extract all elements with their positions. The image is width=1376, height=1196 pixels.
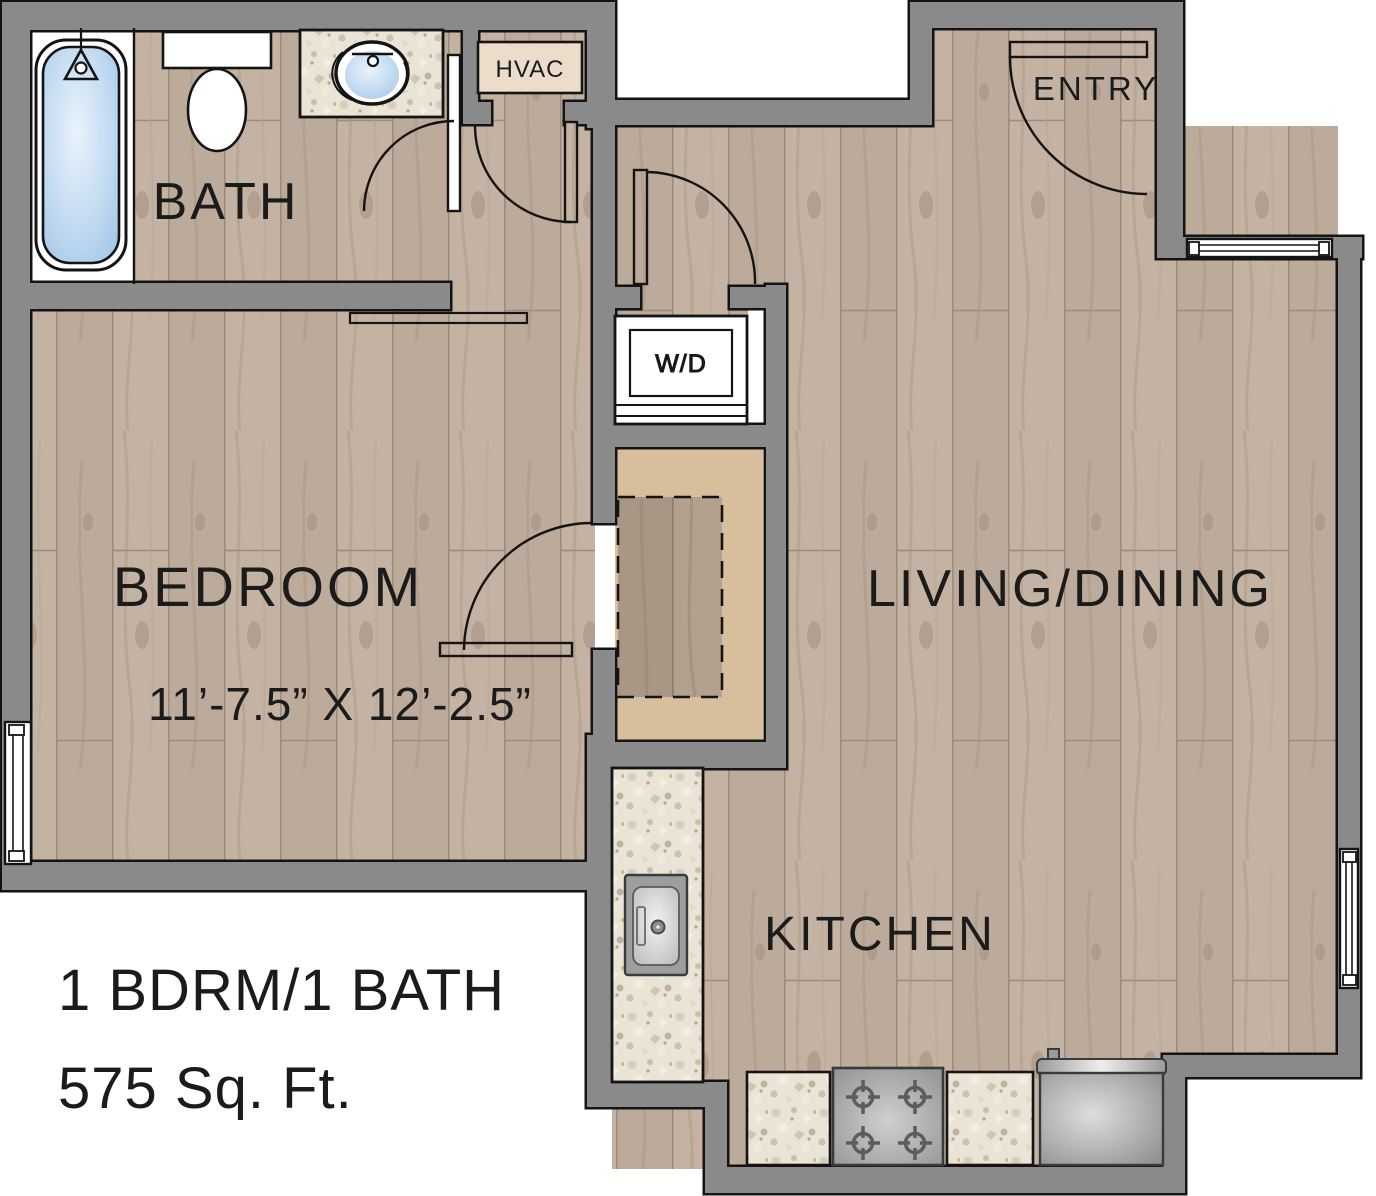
kitchen-sink (625, 875, 687, 975)
plan-summary: 1 BDRM/1 BATH 575 Sq. Ft. (58, 958, 505, 1121)
closet-shelf-line (350, 313, 527, 323)
entry-label: ENTRY (1033, 70, 1159, 107)
hvac-closet: HVAC (478, 42, 582, 93)
fridge-body (1040, 1073, 1163, 1165)
kitchen-counter-south-left (747, 1072, 830, 1165)
closet (618, 497, 722, 697)
floor-plan-page: HVAC W/D (0, 0, 1376, 1196)
living-window-east (1340, 849, 1358, 988)
floor-plan-drawing: HVAC W/D (0, 0, 1376, 1196)
refrigerator (1037, 1049, 1166, 1165)
washer-dryer: W/D (615, 316, 747, 424)
bath-label: BATH (153, 173, 300, 231)
bedroom-window-west (5, 722, 31, 864)
stove (833, 1068, 943, 1165)
kitchen-counter-south-right (947, 1072, 1033, 1165)
wd-label: W/D (655, 350, 707, 378)
living-window-north (1187, 239, 1332, 257)
bedroom-label: BEDROOM (113, 555, 423, 618)
plan-summary-line2: 575 Sq. Ft. (58, 1056, 353, 1121)
hallway-opening (450, 283, 595, 311)
vanity (300, 30, 443, 117)
kitchen-label: KITCHEN (764, 908, 996, 961)
closet-rod-dashed-outline (618, 497, 722, 697)
living-dining-label: LIVING/DINING (867, 560, 1273, 618)
hvac-label: HVAC (496, 56, 565, 83)
plan-summary-line1: 1 BDRM/1 BATH (58, 958, 505, 1023)
bedroom-dimensions: 11’-7.5” X 12’-2.5” (148, 678, 532, 730)
